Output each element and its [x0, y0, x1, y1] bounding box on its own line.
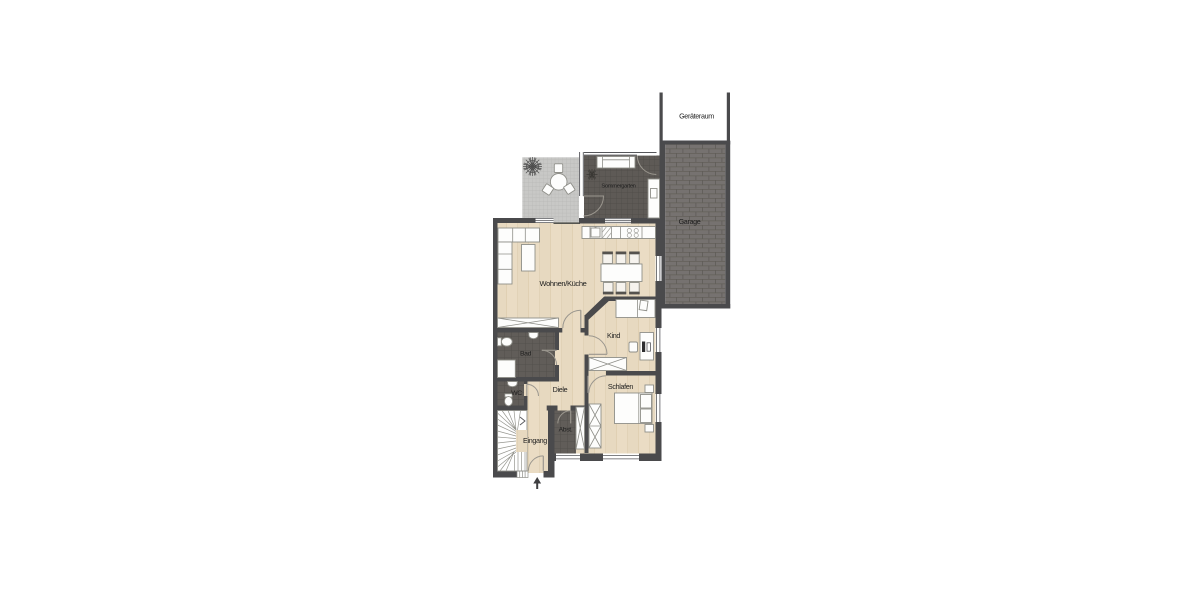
svg-text:WC: WC	[511, 390, 522, 397]
svg-text:Eingang: Eingang	[523, 436, 547, 445]
svg-text:Bad: Bad	[520, 351, 532, 358]
svg-text:Garage: Garage	[679, 217, 701, 226]
svg-text:Kind: Kind	[607, 331, 620, 340]
svg-text:Diele: Diele	[553, 385, 568, 394]
svg-text:Geräteraum: Geräteraum	[679, 112, 714, 121]
svg-text:Schlafen: Schlafen	[608, 382, 634, 391]
svg-text:Sommergarten: Sommergarten	[601, 184, 635, 190]
svg-text:Abst.: Abst.	[559, 427, 573, 434]
svg-text:Wohnen/Küche: Wohnen/Küche	[540, 279, 587, 288]
